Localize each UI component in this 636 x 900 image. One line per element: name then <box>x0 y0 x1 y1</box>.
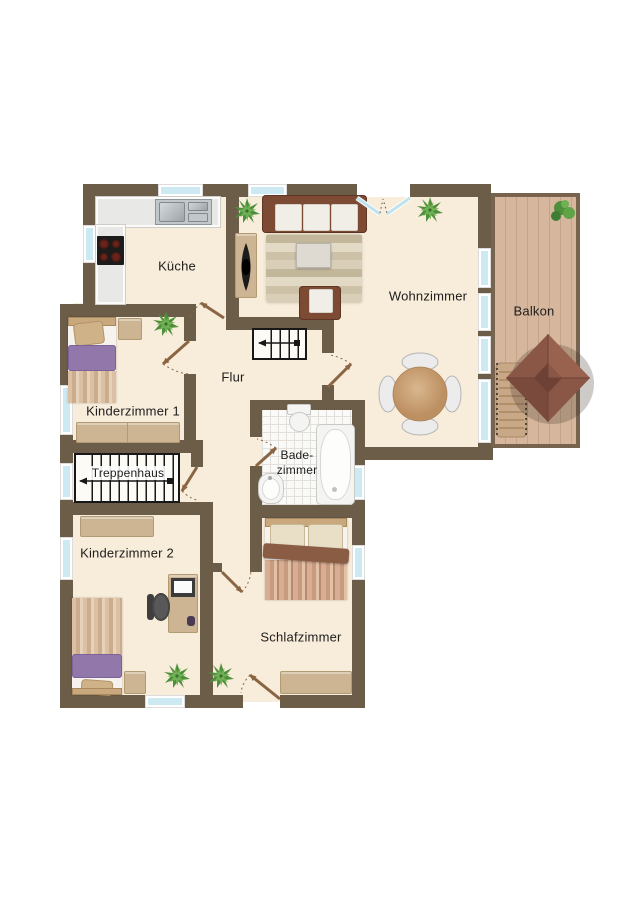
room-label-wohnzimmer: Wohnzimmer <box>389 289 467 304</box>
duvet <box>72 598 122 655</box>
wall <box>322 385 334 400</box>
duvet <box>265 560 347 600</box>
kitchen-sink <box>155 199 212 225</box>
room-label-kinderzimmer1: Kinderzimmer 1 <box>86 404 180 419</box>
wall <box>478 443 491 460</box>
stove <box>97 236 124 265</box>
tv-sideboard <box>235 233 257 298</box>
window <box>60 537 73 580</box>
window <box>158 184 203 197</box>
wall <box>184 304 196 341</box>
sideboard-divider <box>127 423 128 442</box>
room-label-balkon: Balkon <box>514 304 555 319</box>
bed <box>72 598 122 695</box>
balcony-glass-door <box>478 293 491 331</box>
room-label-schlafzimmer: Schlafzimmer <box>260 630 341 645</box>
wall <box>184 374 196 440</box>
room-label-kueche: Küche <box>158 259 196 274</box>
room-label-badezimmer-line2: zimmer <box>277 463 318 477</box>
bed <box>68 317 116 403</box>
sofa <box>262 195 367 233</box>
monitor <box>171 578 195 597</box>
room-label-flur: Flur <box>221 370 244 385</box>
blanket <box>68 345 116 371</box>
duvet <box>68 371 116 403</box>
wall <box>250 505 365 518</box>
nightstand <box>118 318 142 340</box>
window <box>352 545 365 580</box>
wall <box>203 184 248 197</box>
wall <box>185 695 243 708</box>
balcony-glass-door <box>478 379 491 443</box>
wall <box>213 563 222 572</box>
washbasin <box>258 473 284 504</box>
window <box>60 463 73 500</box>
pillow <box>73 320 106 346</box>
bathtub <box>316 424 355 505</box>
balcony-deck <box>491 193 580 448</box>
room-label-treppenhaus: Treppenhaus <box>89 466 167 480</box>
window <box>83 225 96 263</box>
wall <box>322 317 334 353</box>
wall <box>60 695 145 708</box>
wall <box>83 184 96 225</box>
room-label-kinderzimmer2: Kinderzimmer 2 <box>80 546 174 561</box>
office-chair <box>147 591 171 623</box>
wall <box>250 410 262 437</box>
computer-mouse <box>187 616 195 626</box>
wall <box>478 184 491 248</box>
nightstand <box>124 671 146 694</box>
armchair <box>299 286 341 320</box>
wall <box>60 304 196 317</box>
room-label-badezimmer-line1: Bade- <box>280 448 313 462</box>
blanket <box>72 654 122 678</box>
staircase <box>252 328 307 360</box>
sideboard <box>280 671 352 694</box>
wall <box>60 502 213 515</box>
window <box>145 695 185 708</box>
wall <box>352 580 365 708</box>
wall <box>352 447 493 460</box>
coffee-table <box>296 243 331 268</box>
balcony-glass-door <box>478 336 491 374</box>
sideboard <box>76 422 180 443</box>
wall <box>200 515 213 708</box>
wall <box>191 453 203 467</box>
floor-plan: Küche Wohnzimmer Balkon Kinderzimmer 1 F… <box>0 0 636 900</box>
balcony-glass-door <box>478 248 491 288</box>
sideboard <box>80 516 154 537</box>
double-bed <box>265 518 347 600</box>
